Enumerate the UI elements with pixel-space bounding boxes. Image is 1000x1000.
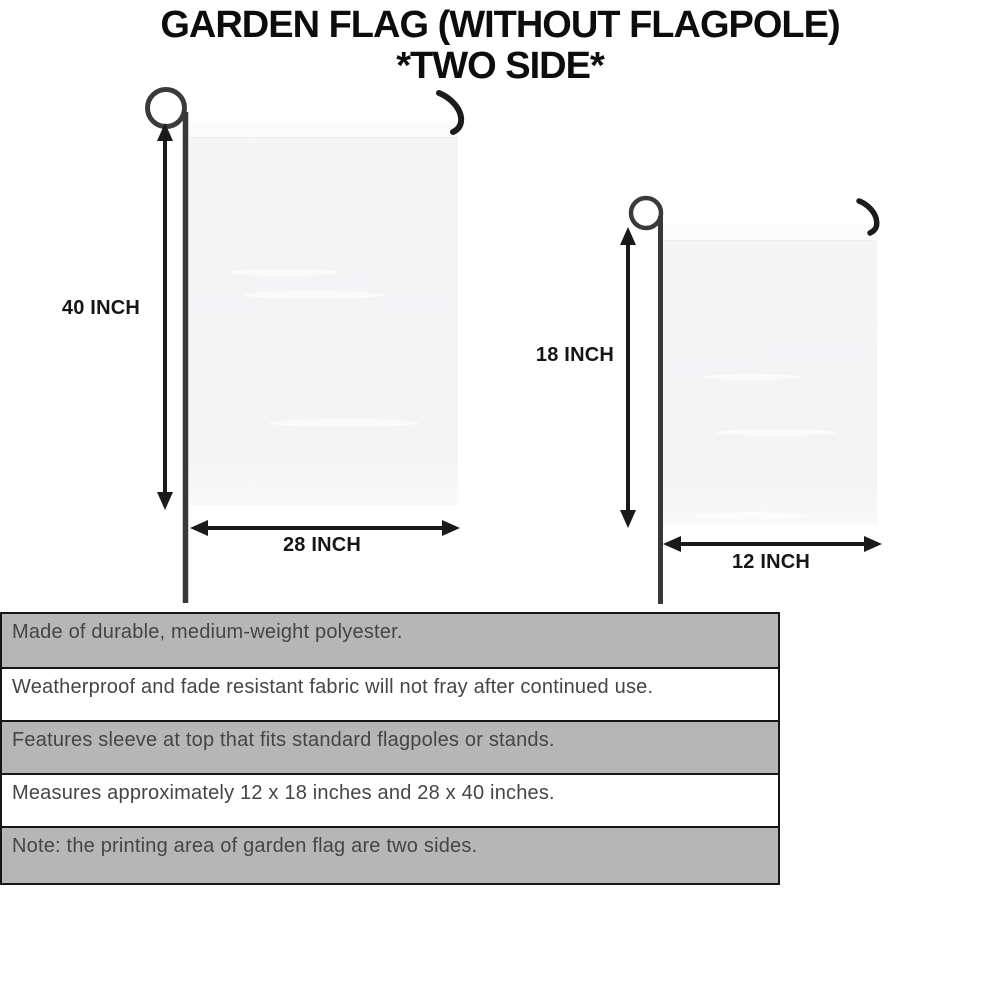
large-flag-sleeve (189, 121, 458, 138)
page-title: GARDEN FLAG (WITHOUT FLAGPOLE) *TWO SIDE… (0, 4, 1000, 86)
small-flag-fabric (661, 224, 877, 525)
fabric-fold (269, 419, 419, 427)
small-flag-height-label: 18 INCH (494, 344, 614, 367)
large-flagpole (148, 90, 186, 604)
title-line-2: *TWO SIDE* (0, 46, 1000, 86)
small-flag-width-label: 12 INCH (690, 551, 852, 574)
large-flag-width-label: 28 INCH (240, 534, 404, 557)
height-arrow-40 (157, 123, 173, 510)
small-flag-sleeve (661, 224, 877, 241)
width-arrow-12 (663, 536, 882, 552)
title-line-1: GARDEN FLAG (WITHOUT FLAGPOLE) (0, 4, 1000, 46)
feature-row-note: Note: the printing area of garden flag a… (2, 826, 778, 883)
height-arrow-18 (620, 227, 636, 528)
feature-list: Made of durable, medium-weight polyester… (0, 612, 780, 885)
fabric-fold (696, 512, 806, 519)
feature-row-polyester: Made of durable, medium-weight polyester… (2, 614, 778, 667)
fabric-fold (244, 291, 384, 299)
large-flag-height-label: 40 INCH (32, 297, 140, 320)
small-flagpole (631, 198, 661, 604)
feature-row-sleeve: Features sleeve at top that fits standar… (2, 720, 778, 773)
fabric-fold (716, 429, 836, 436)
fabric-fold (701, 374, 801, 380)
feature-row-weatherproof: Weatherproof and fade resistant fabric w… (2, 667, 778, 720)
feature-row-measures: Measures approximately 12 x 18 inches an… (2, 773, 778, 826)
fabric-fold (229, 269, 339, 276)
large-flag-fabric (189, 121, 458, 505)
